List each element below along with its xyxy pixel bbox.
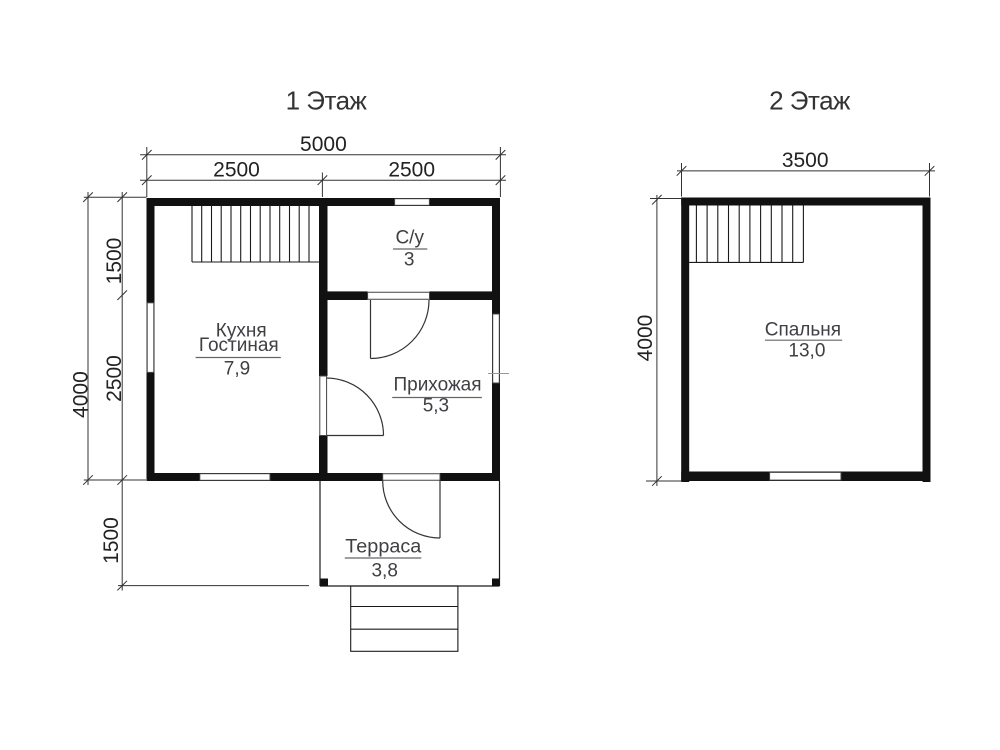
svg-text:1 Этаж: 1 Этаж	[286, 86, 368, 116]
svg-text:Спальня: Спальня	[765, 320, 841, 341]
svg-text:5,3: 5,3	[423, 396, 449, 417]
svg-text:2 Этаж: 2 Этаж	[769, 86, 851, 116]
svg-text:2500: 2500	[388, 159, 435, 182]
svg-text:Терраса: Терраса	[345, 537, 421, 558]
svg-text:2500: 2500	[103, 355, 126, 402]
svg-text:1500: 1500	[103, 238, 126, 285]
svg-text:3500: 3500	[782, 149, 829, 172]
svg-text:Прихожая: Прихожая	[393, 374, 481, 395]
svg-text:2500: 2500	[213, 159, 260, 182]
svg-text:3,8: 3,8	[371, 561, 397, 582]
svg-text:С/у: С/у	[395, 228, 424, 249]
svg-text:7,9: 7,9	[224, 359, 250, 380]
svg-text:1500: 1500	[100, 517, 123, 564]
svg-text:3: 3	[404, 250, 415, 271]
svg-text:5000: 5000	[300, 133, 347, 156]
svg-text:13,0: 13,0	[788, 340, 825, 361]
svg-text:4000: 4000	[634, 315, 657, 362]
svg-text:4000: 4000	[70, 371, 93, 418]
svg-text:Гостиная: Гостиная	[199, 335, 279, 356]
